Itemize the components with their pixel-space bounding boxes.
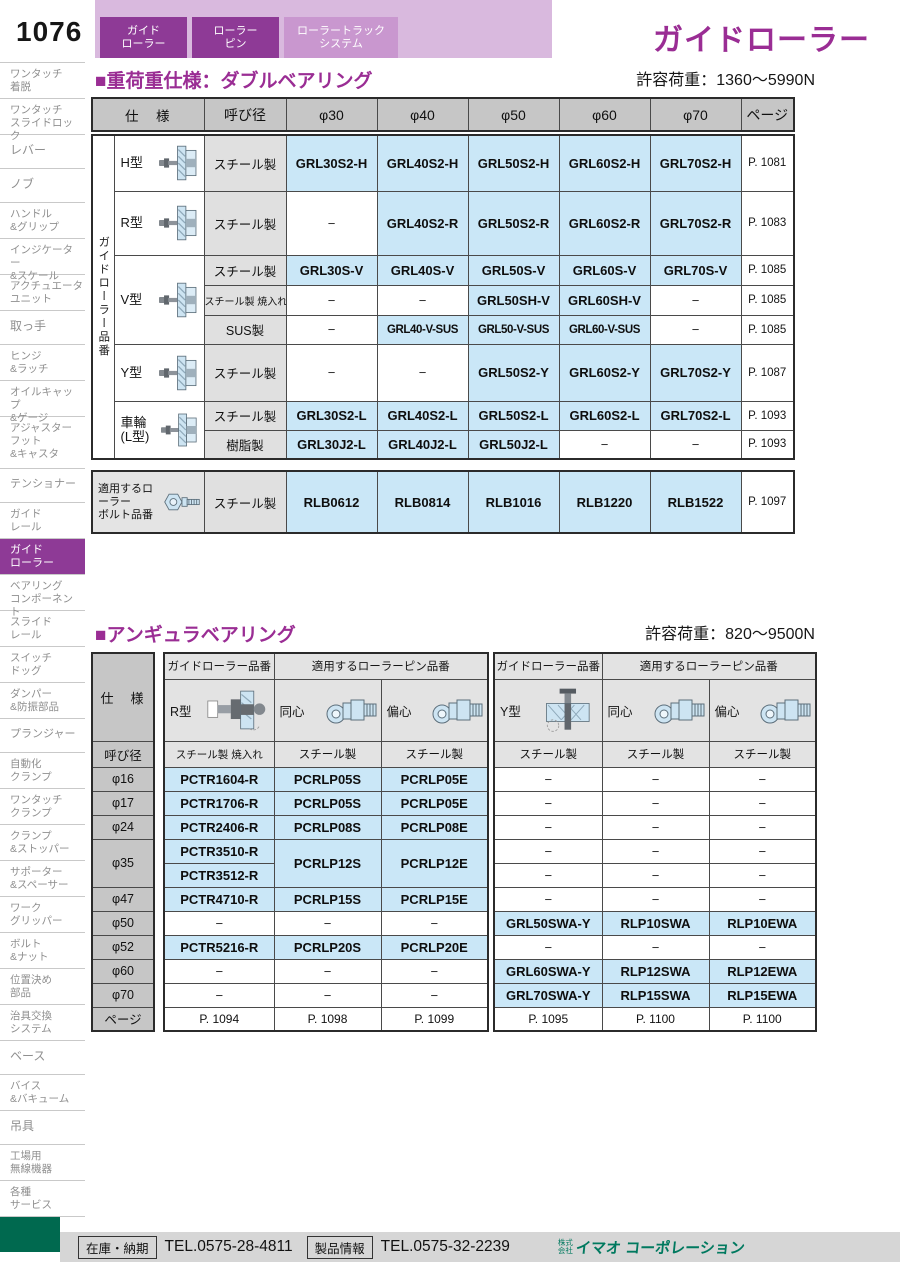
sidebar-item-guide-roller[interactable]: ガイド ローラー xyxy=(0,539,85,575)
sidebar-item[interactable]: スライド レール xyxy=(0,611,85,647)
part-cell: GRL40-V-SUS xyxy=(377,315,468,344)
empty-cell: − xyxy=(650,430,741,459)
part-cell: GRL30S2-L xyxy=(286,401,377,430)
dia-cell: φ16 xyxy=(92,767,154,791)
sidebar-item[interactable]: ガイド レール xyxy=(0,503,85,539)
t2-type-cell-y: Y型 xyxy=(494,679,602,741)
roller-v-icon xyxy=(159,279,201,321)
part-cell: GRL60S2-Y xyxy=(559,344,650,401)
page-ref[interactable]: P. 1100 xyxy=(602,1007,709,1031)
material-header: スチール製 xyxy=(602,741,709,767)
empty-cell: − xyxy=(381,983,488,1007)
t1-side-label: ガイドローラー品番 xyxy=(92,135,114,459)
dia-cell: φ35 xyxy=(92,839,154,887)
group-header: 適用するローラーピン品番 xyxy=(274,653,488,679)
sidebar-item[interactable]: アクチュエータ ユニット xyxy=(0,275,85,311)
empty-cell: − xyxy=(164,959,274,983)
empty-cell: − xyxy=(602,767,709,791)
group-header: ガイドローラー品番 xyxy=(164,653,274,679)
part-cell: RLB0814 xyxy=(377,471,468,533)
part-cell: GRL70S2-H xyxy=(650,135,741,191)
empty-cell: − xyxy=(709,887,816,911)
empty-cell: − xyxy=(602,863,709,887)
part-cell: RLB1016 xyxy=(468,471,559,533)
sidebar-item[interactable]: 吊具 xyxy=(0,1111,85,1145)
part-cell: PCRLP05S xyxy=(274,791,381,815)
empty-cell: − xyxy=(602,839,709,863)
sidebar-item[interactable]: ノブ xyxy=(0,169,85,203)
pin-label: 偏心 xyxy=(387,701,412,720)
empty-cell: − xyxy=(709,815,816,839)
page-number: 1076 xyxy=(16,16,82,48)
part-cell: GRL40S-V xyxy=(377,255,468,285)
roller-r-icon xyxy=(159,202,201,244)
page-ref[interactable]: P. 1093 xyxy=(741,401,794,430)
page-ref[interactable]: P. 1085 xyxy=(741,285,794,315)
empty-cell: − xyxy=(494,791,602,815)
empty-cell: − xyxy=(602,815,709,839)
material-header: スチール製 xyxy=(381,741,488,767)
part-cell: GRL50SWA-Y xyxy=(494,911,602,935)
part-cell: GRL50S2-R xyxy=(468,191,559,255)
t2-page-label: ページ xyxy=(92,1007,154,1031)
part-cell: GRL50J2-L xyxy=(468,430,559,459)
empty-cell: − xyxy=(381,911,488,935)
roller-h-icon xyxy=(159,143,201,183)
empty-cell: − xyxy=(494,839,602,863)
part-cell: PCRLP05S xyxy=(274,767,381,791)
pin-label: 同心 xyxy=(608,701,633,720)
table2-right: ガイドローラー品番 適用するローラーピン品番 Y型 同心 偏心 スチール製 スチ… xyxy=(493,652,817,1032)
part-cell: GRL50SH-V xyxy=(468,285,559,315)
sidebar-item[interactable]: ワンタッチ 着脱 xyxy=(0,63,85,99)
part-cell: PCTR5216-R xyxy=(164,935,274,959)
empty-cell: − xyxy=(602,935,709,959)
part-cell: GRL30S2-H xyxy=(286,135,377,191)
col-header-d60: φ60 xyxy=(559,98,650,131)
t2-pin-eccentric-cell: 偏心 xyxy=(381,679,488,741)
empty-cell: − xyxy=(286,191,377,255)
part-cell: PCTR3512-R xyxy=(164,863,274,887)
dia-cell: φ17 xyxy=(92,791,154,815)
part-cell: GRL50-V-SUS xyxy=(468,315,559,344)
type-cell-y: Y型 xyxy=(114,344,204,401)
tab-roller-track-system[interactable]: ローラートラック システム xyxy=(284,17,398,58)
page-ref[interactable]: P. 1094 xyxy=(164,1007,274,1031)
pin-label: 同心 xyxy=(280,701,305,720)
part-cell: GRL30S-V xyxy=(286,255,377,285)
col-header-d50: φ50 xyxy=(468,98,559,131)
sidebar-item[interactable]: ワーク グリッパー xyxy=(0,897,85,933)
part-cell: PCRLP15E xyxy=(381,887,488,911)
group-header: 適用するローラーピン品番 xyxy=(602,653,816,679)
product-info-label: 製品情報 xyxy=(307,1236,373,1259)
part-cell: PCRLP05E xyxy=(381,791,488,815)
part-cell: GRL40S2-H xyxy=(377,135,468,191)
sidebar-item[interactable]: テンショナー xyxy=(0,469,85,503)
empty-cell: − xyxy=(286,315,377,344)
part-cell: PCTR1604-R xyxy=(164,767,274,791)
page-ref[interactable]: P. 1100 xyxy=(709,1007,816,1031)
empty-cell: − xyxy=(494,767,602,791)
material-cell: 樹脂製 xyxy=(204,430,286,459)
part-cell: GRL40S2-L xyxy=(377,401,468,430)
col-header-d70: φ70 xyxy=(650,98,741,131)
sidebar-item[interactable]: バイス &バキューム xyxy=(0,1075,85,1111)
col-header-d40: φ40 xyxy=(377,98,468,131)
material-cell: スチール製 xyxy=(204,135,286,191)
sidebar-item[interactable]: ハンドル &グリップ xyxy=(0,203,85,239)
part-cell: RLP10EWA xyxy=(709,911,816,935)
sidebar-item[interactable]: スイッチ ドッグ xyxy=(0,647,85,683)
part-cell: RLP15EWA xyxy=(709,983,816,1007)
table2-left: ガイドローラー品番 適用するローラーピン品番 R型 同心 偏心 スチール製 焼入… xyxy=(163,652,489,1032)
part-cell: RLB1220 xyxy=(559,471,650,533)
part-cell: GRL60S2-H xyxy=(559,135,650,191)
col-header-page: ページ xyxy=(741,98,794,131)
part-cell: GRL40S2-R xyxy=(377,191,468,255)
empty-cell: − xyxy=(164,983,274,1007)
stock-delivery-label: 在庫・納期 xyxy=(78,1236,157,1259)
page-ref[interactable]: P. 1083 xyxy=(741,191,794,255)
empty-cell: − xyxy=(650,315,741,344)
product-phone: TEL.0575-32-2239 xyxy=(381,1238,510,1256)
part-cell: RLB1522 xyxy=(650,471,741,533)
part-cell: PCRLP15S xyxy=(274,887,381,911)
section2-load-rating: 許容荷重：820〜9500N xyxy=(645,620,815,644)
roller-y-icon xyxy=(159,352,201,394)
empty-cell: − xyxy=(709,767,816,791)
material-cell: SUS製 xyxy=(204,315,286,344)
pin-label: 偏心 xyxy=(715,701,740,720)
type-cell-r: R型 xyxy=(114,191,204,255)
t2-type-cell-r: R型 xyxy=(164,679,274,741)
part-cell: GRL60SWA-Y xyxy=(494,959,602,983)
part-cell: GRL70S2-L xyxy=(650,401,741,430)
sidebar-item[interactable]: ヒンジ &ラッチ xyxy=(0,345,85,381)
type-label: Y型 xyxy=(500,701,521,720)
table1-body: ガイドローラー品番 H型 スチール製 GRL30S2-H GRL40S2-H G… xyxy=(91,134,795,460)
part-cell: RLP12SWA xyxy=(602,959,709,983)
concentric-pin-icon xyxy=(326,695,378,725)
footer-green-block xyxy=(0,1217,60,1252)
sidebar: ワンタッチ 着脱 ワンタッチ スライドロック レバー ノブ ハンドル &グリップ… xyxy=(0,62,85,1217)
type-cell-h: H型 xyxy=(114,135,204,191)
section1-load-rating: 許容荷重：1360〜5990N xyxy=(636,66,815,90)
empty-cell: − xyxy=(494,935,602,959)
part-cell: GRL50S-V xyxy=(468,255,559,285)
material-header: スチール製 焼入れ xyxy=(164,741,274,767)
part-cell: GRL50S2-L xyxy=(468,401,559,430)
part-cell: RLP12EWA xyxy=(709,959,816,983)
eccentric-pin-icon xyxy=(432,695,484,725)
t2-spec-label: 仕 様 xyxy=(92,653,154,741)
table1-header: 仕 様 呼び径 φ30 φ40 φ50 φ60 φ70 ページ xyxy=(91,97,795,132)
group-header: ガイドローラー品番 xyxy=(494,653,602,679)
catalog-page: 1076 ガイド ローラー ローラー ピン ローラートラック システム ガイドロ… xyxy=(0,0,900,1272)
empty-cell: − xyxy=(559,430,650,459)
empty-cell: − xyxy=(274,911,381,935)
sidebar-item[interactable]: 治具交換 システム xyxy=(0,1005,85,1041)
company-name: イマオ コーポレーション xyxy=(575,1237,746,1258)
footer-bar: 在庫・納期 TEL.0575-28-4811 製品情報 TEL.0575-32-… xyxy=(60,1232,900,1262)
part-cell: PCRLP08E xyxy=(381,815,488,839)
part-cell: GRL60S2-L xyxy=(559,401,650,430)
tab-roller-pin[interactable]: ローラー ピン xyxy=(192,17,279,58)
empty-cell: − xyxy=(274,983,381,1007)
sidebar-item[interactable]: ワンタッチ クランプ xyxy=(0,789,85,825)
part-cell: GRL70S2-Y xyxy=(650,344,741,401)
dia-cell: φ60 xyxy=(92,959,154,983)
part-cell: PCRLP12E xyxy=(381,839,488,887)
sidebar-item[interactable]: サポーター &スペーサー xyxy=(0,861,85,897)
page-ref[interactable]: P. 1099 xyxy=(381,1007,488,1031)
empty-cell: − xyxy=(164,911,274,935)
sidebar-item[interactable]: ダンパー &防振部品 xyxy=(0,683,85,719)
material-cell: スチール製 xyxy=(204,191,286,255)
sidebar-item[interactable]: 各種 サービス xyxy=(0,1181,85,1217)
part-cell: GRL70S-V xyxy=(650,255,741,285)
sidebar-item[interactable]: 位置決め 部品 xyxy=(0,969,85,1005)
type-label: Y型 xyxy=(121,366,143,380)
sidebar-item[interactable]: 取っ手 xyxy=(0,311,85,345)
part-cell: PCRLP20S xyxy=(274,935,381,959)
page-ref[interactable]: P. 1097 xyxy=(741,471,794,533)
tab-strip: ガイド ローラー ローラー ピン ローラートラック システム xyxy=(95,0,552,58)
company-prefix: 株式 会社 xyxy=(558,1239,573,1255)
empty-cell: − xyxy=(709,791,816,815)
part-cell: PCRLP12S xyxy=(274,839,381,887)
material-cell: スチール製 焼入れ xyxy=(204,285,286,315)
t2-pin-eccentric-cell: 偏心 xyxy=(709,679,816,741)
empty-cell: − xyxy=(377,344,468,401)
col-header-diameter: 呼び径 xyxy=(204,98,286,131)
part-cell: PCTR4710-R xyxy=(164,887,274,911)
empty-cell: − xyxy=(494,815,602,839)
wheel-l-icon xyxy=(161,410,201,450)
empty-cell: − xyxy=(377,285,468,315)
material-cell: スチール製 xyxy=(204,255,286,285)
part-cell: PCRLP20E xyxy=(381,935,488,959)
type-label: H型 xyxy=(121,156,143,170)
page-ref[interactable]: P. 1087 xyxy=(741,344,794,401)
bolt-label: 適用するローラー ボルト品番 xyxy=(98,483,163,522)
t2-pin-concentric-cell: 同心 xyxy=(602,679,709,741)
part-cell: GRL70SWA-Y xyxy=(494,983,602,1007)
company-logo: 株式 会社 イマオ コーポレーション xyxy=(558,1237,745,1258)
part-cell: PCRLP05E xyxy=(381,767,488,791)
page-ref[interactable]: P. 1081 xyxy=(741,135,794,191)
eccentric-pin-icon xyxy=(760,695,812,725)
part-cell: GRL70S2-R xyxy=(650,191,741,255)
sidebar-item[interactable]: プランジャー xyxy=(0,719,85,753)
part-cell: GRL40J2-L xyxy=(377,430,468,459)
sidebar-item[interactable]: 工場用 無線機器 xyxy=(0,1145,85,1181)
material-header: スチール製 xyxy=(274,741,381,767)
sidebar-item[interactable]: オイルキャップ &ゲージ xyxy=(0,381,85,417)
part-cell: PCTR1706-R xyxy=(164,791,274,815)
section1-heading: ■重荷重仕様：ダブルベアリング xyxy=(95,66,372,93)
part-cell: GRL60S-V xyxy=(559,255,650,285)
sidebar-item[interactable]: ベース xyxy=(0,1041,85,1075)
page-ref[interactable]: P. 1095 xyxy=(494,1007,602,1031)
empty-cell: − xyxy=(709,935,816,959)
empty-cell: − xyxy=(494,863,602,887)
type-label: V型 xyxy=(121,293,143,307)
stock-phone: TEL.0575-28-4811 xyxy=(165,1238,293,1256)
sidebar-item[interactable]: 自動化 クランプ xyxy=(0,753,85,789)
part-cell: RLP15SWA xyxy=(602,983,709,1007)
part-cell: PCRLP08S xyxy=(274,815,381,839)
section2-heading: ■アンギュラベアリング xyxy=(95,620,296,647)
empty-cell: − xyxy=(494,887,602,911)
empty-cell: − xyxy=(602,887,709,911)
sidebar-item[interactable]: インジケーター &スケール xyxy=(0,239,85,275)
dia-cell: φ50 xyxy=(92,911,154,935)
part-cell: GRL50S2-H xyxy=(468,135,559,191)
part-cell: GRL30J2-L xyxy=(286,430,377,459)
material-header: スチール製 xyxy=(494,741,602,767)
bolt-label-cell: 適用するローラー ボルト品番 xyxy=(92,471,204,533)
table2-label-column: 仕 様 呼び径 φ16 φ17 φ24 φ35 φ47 φ50 φ52 φ60 … xyxy=(91,652,155,1032)
part-cell: GRL60S2-R xyxy=(559,191,650,255)
page-ref[interactable]: P. 1098 xyxy=(274,1007,381,1031)
part-cell: GRL50S2-Y xyxy=(468,344,559,401)
part-cell: RLP10SWA xyxy=(602,911,709,935)
empty-cell: − xyxy=(602,791,709,815)
material-cell: スチール製 xyxy=(204,471,286,533)
type-cell-wheel-l: 車輪 (L型) xyxy=(114,401,204,459)
sidebar-item[interactable]: アジャスター フット &キャスタ xyxy=(0,417,85,469)
page-ref[interactable]: P. 1085 xyxy=(741,255,794,285)
sidebar-item[interactable]: ワンタッチ スライドロック xyxy=(0,99,85,135)
material-header: スチール製 xyxy=(709,741,816,767)
roller-r-assembly-icon xyxy=(207,686,271,734)
part-cell: GRL60SH-V xyxy=(559,285,650,315)
col-header-d30: φ30 xyxy=(286,98,377,131)
empty-cell: − xyxy=(286,285,377,315)
type-label: R型 xyxy=(170,701,192,720)
dia-cell: φ24 xyxy=(92,815,154,839)
empty-cell: − xyxy=(709,839,816,863)
page-ref[interactable]: P. 1093 xyxy=(741,430,794,459)
dia-cell: φ47 xyxy=(92,887,154,911)
part-cell: PCTR3510-R xyxy=(164,839,274,863)
material-cell: スチール製 xyxy=(204,401,286,430)
type-cell-v: V型 xyxy=(114,255,204,344)
col-header-spec: 仕 様 xyxy=(92,98,204,131)
sidebar-item[interactable]: クランプ &ストッパー xyxy=(0,825,85,861)
type-label: R型 xyxy=(121,216,143,230)
roller-bolt-icon xyxy=(163,489,201,515)
part-cell: PCTR2406-R xyxy=(164,815,274,839)
sidebar-item[interactable]: ベアリング コンポーネント xyxy=(0,575,85,611)
t2-pin-concentric-cell: 同心 xyxy=(274,679,381,741)
page-title: ガイドローラー xyxy=(653,15,870,59)
dia-cell: φ70 xyxy=(92,983,154,1007)
page-ref[interactable]: P. 1085 xyxy=(741,315,794,344)
empty-cell: − xyxy=(274,959,381,983)
tab-guide-roller[interactable]: ガイド ローラー xyxy=(100,17,187,58)
empty-cell: − xyxy=(650,285,741,315)
dia-cell: φ52 xyxy=(92,935,154,959)
empty-cell: − xyxy=(709,863,816,887)
concentric-pin-icon xyxy=(654,695,706,725)
empty-cell: − xyxy=(286,344,377,401)
part-cell: GRL60-V-SUS xyxy=(559,315,650,344)
table1-bolt-row: 適用するローラー ボルト品番 スチール製 RLB0612 RLB0814 RLB… xyxy=(91,470,795,534)
sidebar-item[interactable]: ボルト &ナット xyxy=(0,933,85,969)
type-label: 車輪 (L型) xyxy=(121,416,150,444)
empty-cell: − xyxy=(381,959,488,983)
t2-dia-label: 呼び径 xyxy=(92,741,154,767)
material-cell: スチール製 xyxy=(204,344,286,401)
roller-y-assembly-icon xyxy=(535,686,599,734)
part-cell: RLB0612 xyxy=(286,471,377,533)
